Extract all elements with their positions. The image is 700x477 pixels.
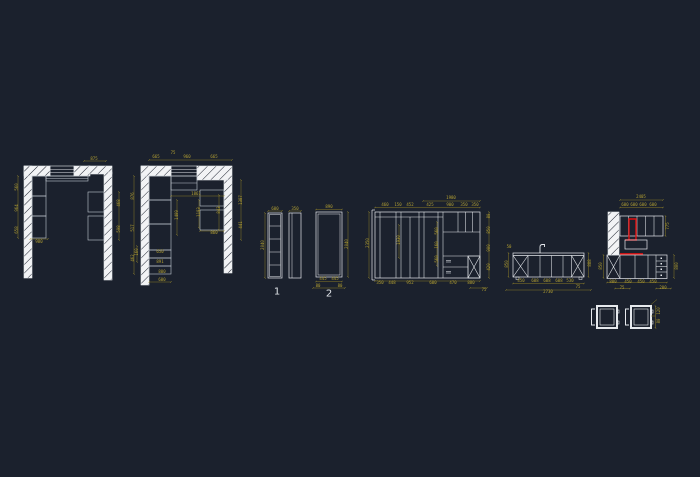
hotspot-elevation-1[interactable] xyxy=(260,205,305,295)
hotspot-section-details[interactable] xyxy=(588,300,663,332)
hotspot-plan-view-1[interactable] xyxy=(14,155,126,285)
hotspot-main-elevation[interactable] xyxy=(365,195,495,295)
hotspot-elevation-2[interactable] xyxy=(310,204,352,299)
hotspot-hood-wall-elevation[interactable] xyxy=(598,193,683,293)
hotspot-plan-view-2[interactable] xyxy=(130,150,245,290)
hotspot-sink-counter-elevation[interactable] xyxy=(503,240,595,296)
cad-canvas[interactable]: 8755609646589804685986657596066587651746… xyxy=(0,0,700,477)
